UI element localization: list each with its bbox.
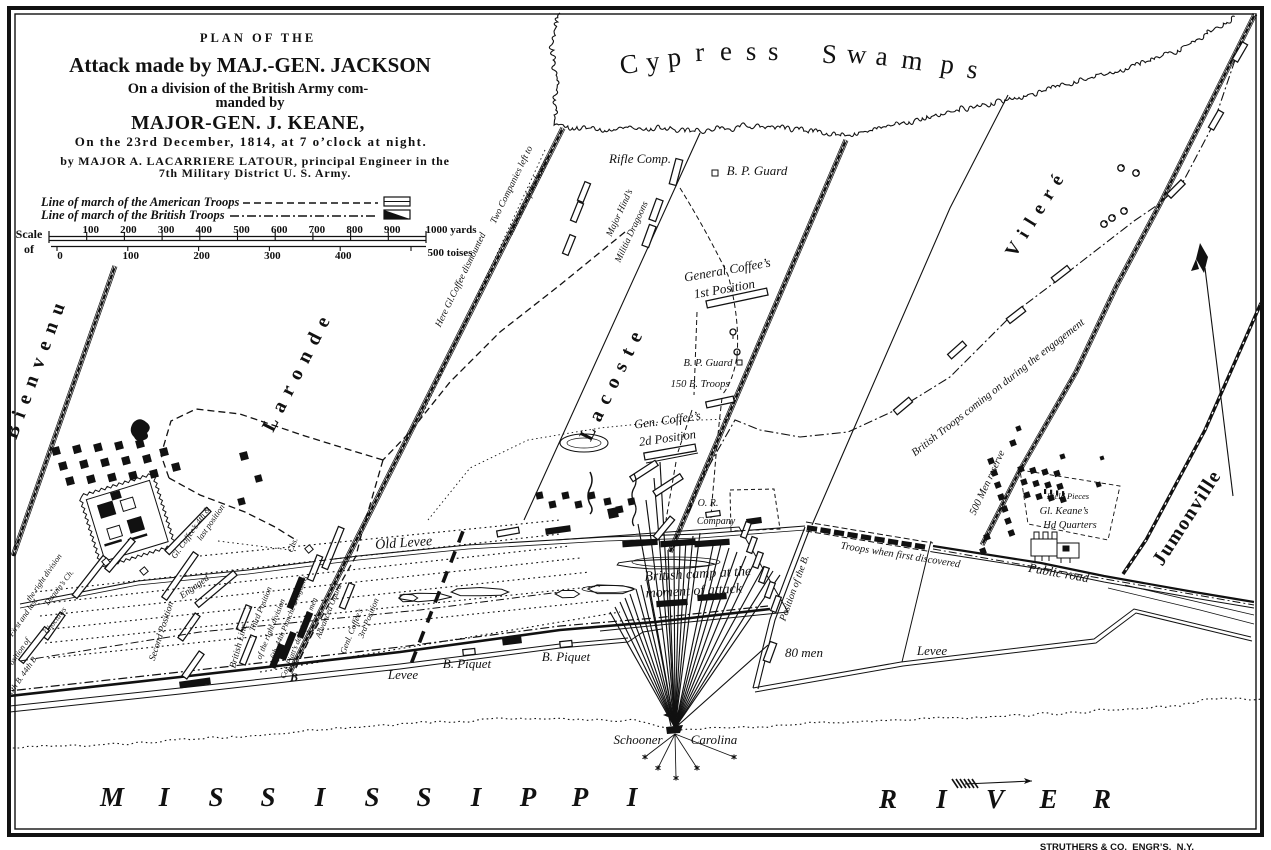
svg-text:E: E [1038, 784, 1057, 814]
svg-text:r: r [695, 37, 705, 67]
svg-text:S: S [364, 782, 379, 812]
svg-text:Field Pieces: Field Pieces [1046, 491, 1090, 501]
svg-text:I: I [158, 782, 171, 812]
svg-text:600: 600 [271, 224, 288, 236]
svg-text:B: B [289, 670, 298, 684]
svg-text:R: R [1092, 784, 1111, 814]
svg-text:Schooner: Schooner [613, 732, 663, 747]
svg-text:700: 700 [309, 224, 326, 236]
svg-text:Gl. Keane’s: Gl. Keane’s [1040, 506, 1089, 517]
svg-text:Scale: Scale [16, 227, 43, 241]
svg-text:s: s [768, 36, 780, 66]
svg-text:I: I [935, 784, 948, 814]
svg-text:500: 500 [233, 224, 250, 236]
svg-text:150 B. Troops: 150 B. Troops [671, 379, 730, 390]
svg-text:On the 23rd December, 1814, at: On the 23rd December, 1814, at 7 o’clock… [75, 134, 428, 149]
svg-text:Attack made by MAJ.-GEN. JACKS: Attack made by MAJ.-GEN. JACKSON [69, 53, 431, 77]
svg-text:m: m [900, 44, 925, 77]
svg-text:S: S [821, 39, 838, 70]
svg-text:S: S [208, 782, 223, 812]
svg-text:900: 900 [384, 224, 401, 236]
svg-text:Hd Quarters: Hd Quarters [1042, 520, 1096, 531]
svg-text:7th Military District U. S. Ar: 7th Military District U. S. Army. [159, 166, 351, 180]
svg-text:400: 400 [196, 224, 213, 236]
svg-text:R: R [878, 784, 897, 814]
svg-text:1000 yards: 1000 yards [425, 224, 477, 236]
svg-text:Line of march of the American: Line of march of the American Troops [40, 195, 240, 209]
svg-text:B. P. Guard: B. P. Guard [683, 358, 733, 369]
svg-text:STRUTHERS & CO. ENGR’S. N.Y.: STRUTHERS & CO. ENGR’S. N.Y. [1040, 842, 1194, 850]
svg-text:P: P [571, 782, 589, 812]
svg-text:Carolina: Carolina [691, 732, 738, 747]
svg-text:O. R.: O. R. [698, 498, 719, 509]
svg-text:p: p [666, 42, 682, 73]
svg-text:100: 100 [123, 250, 140, 262]
svg-text:s: s [746, 36, 757, 66]
svg-text:PLAN OF THE: PLAN OF THE [200, 31, 316, 45]
svg-text:I: I [626, 782, 639, 812]
svg-text:I: I [470, 782, 483, 812]
svg-text:w: w [846, 38, 869, 70]
svg-text:800: 800 [346, 224, 363, 236]
svg-text:0: 0 [57, 250, 63, 262]
svg-text:B. Piquet: B. Piquet [443, 656, 492, 671]
svg-text:Levee: Levee [387, 667, 419, 682]
svg-text:of: of [24, 242, 35, 256]
svg-text:M: M [99, 782, 125, 812]
svg-text:200: 200 [120, 224, 137, 236]
svg-text:B. P. Guard: B. P. Guard [727, 163, 788, 178]
svg-text:P: P [519, 782, 537, 812]
svg-text:S: S [260, 782, 275, 812]
svg-text:Levee: Levee [916, 643, 948, 658]
svg-text:MAJOR-GEN. J. KEANE,: MAJOR-GEN. J. KEANE, [131, 113, 365, 134]
svg-text:S: S [416, 782, 431, 812]
svg-text:e: e [720, 36, 732, 66]
svg-text:Rifle Comp.: Rifle Comp. [608, 151, 671, 166]
svg-text:Company: Company [697, 516, 736, 527]
svg-text:V: V [986, 784, 1006, 814]
svg-text:B. Piquet: B. Piquet [542, 649, 591, 664]
svg-text:80 men: 80 men [785, 645, 823, 660]
svg-text:300: 300 [158, 224, 175, 236]
svg-text:Line of march of the British T: Line of march of the British Troops [40, 208, 225, 222]
svg-text:400: 400 [335, 250, 352, 262]
svg-text:300: 300 [264, 250, 281, 262]
svg-text:200: 200 [193, 250, 210, 262]
svg-text:manded by: manded by [216, 95, 286, 111]
svg-text:100: 100 [82, 224, 99, 236]
svg-text:I: I [314, 782, 327, 812]
